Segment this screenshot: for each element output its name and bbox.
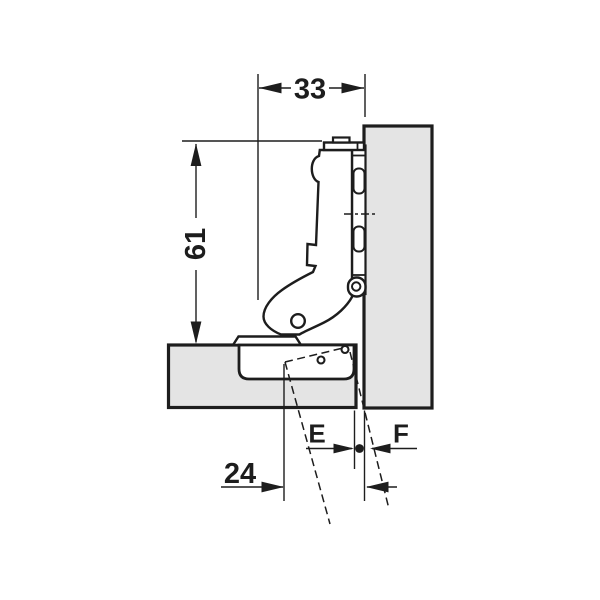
cabinet-side-panel: [364, 126, 432, 408]
hinge-arm: [264, 138, 377, 335]
pivot-point-dot: [355, 444, 364, 453]
cup-screw-hole-right: [342, 346, 349, 353]
drawing-canvas: 33 61: [0, 0, 600, 600]
dimension-bottom-label: 24: [224, 458, 256, 490]
dimension-left-label: 61: [180, 228, 212, 260]
plate-boss-upper: [354, 169, 365, 194]
arrowhead-right-icon: [262, 482, 285, 493]
hinge-technical-drawing: 33 61: [0, 0, 600, 600]
arm-adjustment-hole: [291, 314, 305, 328]
arrowhead-right-icon: [342, 83, 365, 94]
gap-e-label: E: [308, 419, 325, 449]
gap-f-label: F: [393, 419, 409, 449]
arrowhead-left-icon: [366, 482, 389, 493]
arrowhead-left-icon: [259, 83, 282, 94]
plate-boss-lower: [354, 227, 365, 252]
arm-body: [264, 150, 353, 335]
arrowhead-right-icon: [334, 444, 355, 454]
knuckle-pin-hole: [352, 282, 360, 290]
dimension-top-label: 33: [294, 74, 326, 106]
arrowhead-down-icon: [191, 322, 202, 345]
arm-top-step: [333, 138, 350, 143]
cup-screw-hole-left: [318, 357, 325, 364]
arrowhead-up-icon: [191, 144, 202, 167]
arrowhead-left-icon: [370, 444, 391, 454]
